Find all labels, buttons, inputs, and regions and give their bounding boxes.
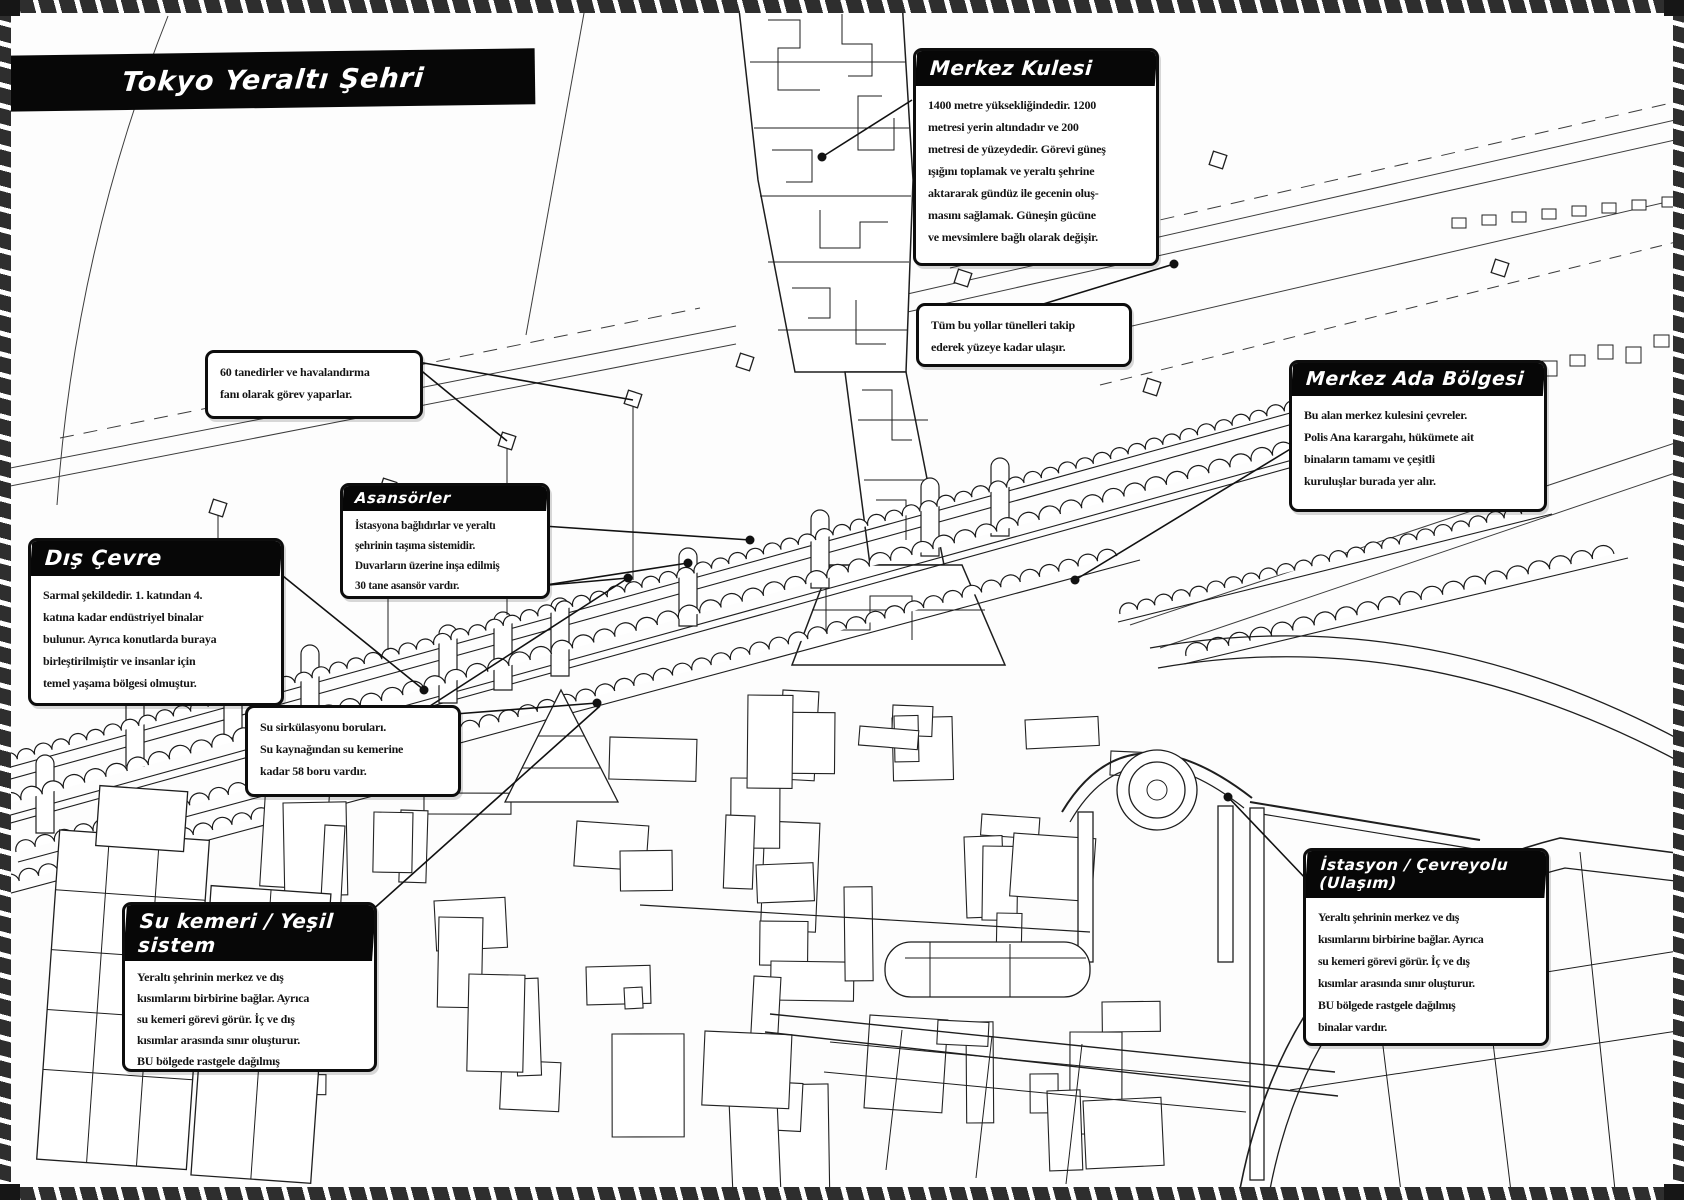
callout-asansorler-title: Asansörler <box>342 486 548 511</box>
callout-tunnel-note-body: Tüm bu yollar tünelleri takip ederek yüz… <box>919 306 1129 364</box>
corner-mark <box>1664 1184 1684 1200</box>
title-banner: Tokyo Yeraltı Şehri <box>0 48 535 111</box>
callout-istasyon: İstasyon / Çevreyolu (Ulaşım) Yeraltı şe… <box>1303 848 1549 1046</box>
callout-su-kemeri-body: Yeraltı şehrinin merkez ve dış kısımları… <box>125 961 374 1072</box>
callout-asansorler: Asansörler İstasyona bağlıdırlar ve yera… <box>340 483 550 599</box>
callout-fan-note: 60 tanedirler ve havalandırma fanı olara… <box>205 350 423 419</box>
callout-su-sirkulasyonu-body: Su sirkülasyonu boruları. Su kaynağından… <box>248 708 458 788</box>
callout-su-kemeri: Su kemeri / Yeşil sistem Yeraltı şehrini… <box>122 902 377 1072</box>
corner-mark <box>0 1184 20 1200</box>
callout-istasyon-title: İstasyon / Çevreyolu (Ulaşım) <box>1304 851 1547 898</box>
callout-merkez-ada-body: Bu alan merkez kulesini çevreler. Polis … <box>1292 396 1544 498</box>
callout-dis-cevre-title: Dış Çevre <box>30 541 282 576</box>
callout-tunnel-note: Tüm bu yollar tünelleri takip ederek yüz… <box>916 303 1132 367</box>
callout-istasyon-body: Yeraltı şehrinin merkez ve dış kısımları… <box>1306 898 1546 1044</box>
callout-dis-cevre-body: Sarmal şekildedir. 1. katından 4. katına… <box>31 576 281 700</box>
callout-asansorler-body: İstasyona bağlıdırlar ve yeraltı şehrini… <box>343 511 547 599</box>
callout-dis-cevre: Dış Çevre Sarmal şekildedir. 1. katından… <box>28 538 284 706</box>
callout-merkez-kulesi: Merkez Kulesi 1400 metre yüksekliğindedi… <box>913 48 1159 266</box>
callout-su-sirkulasyonu: Su sirkülasyonu boruları. Su kaynağından… <box>245 705 461 797</box>
page-title: Tokyo Yeraltı Şehri <box>0 62 426 99</box>
callout-merkez-kulesi-title: Merkez Kulesi <box>915 51 1157 86</box>
corner-mark <box>1664 0 1684 16</box>
callout-fan-note-body: 60 tanedirler ve havalandırma fanı olara… <box>208 353 420 411</box>
callout-su-kemeri-title: Su kemeri / Yeşil sistem <box>123 905 376 961</box>
corner-mark <box>0 0 20 16</box>
manga-diagram-page: Tokyo Yeraltı Şehri Merkez Kulesi 1400 m… <box>0 0 1684 1200</box>
callout-merkez-ada: Merkez Ada Bölgesi Bu alan merkez kulesi… <box>1289 360 1547 512</box>
callout-merkez-kulesi-body: 1400 metre yüksekliğindedir. 1200 metres… <box>916 86 1156 254</box>
callout-merkez-ada-title: Merkez Ada Bölgesi <box>1291 363 1545 396</box>
